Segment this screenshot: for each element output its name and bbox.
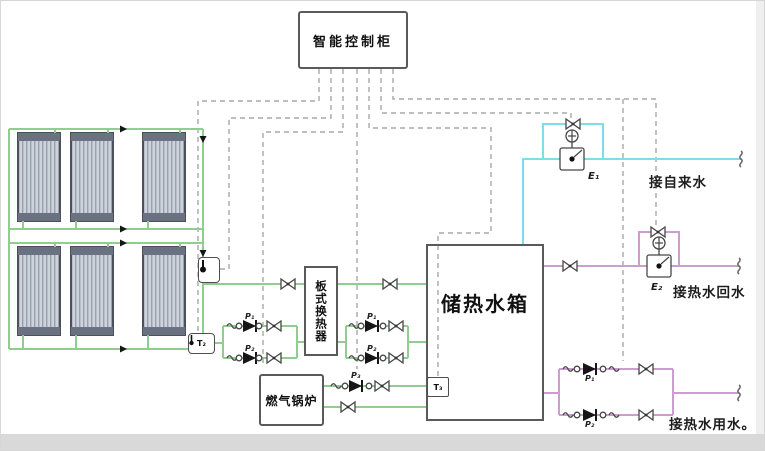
page-margin-right [756,1,764,434]
gate-valve-icon [281,279,295,289]
gate-valve-icon [267,353,281,363]
pump-label-boiler: P₃ [351,372,360,380]
solar-collector-panel [143,133,185,221]
pump-label-hx-2: P₂ [367,345,376,353]
union-icon [236,355,242,361]
storage-tank-label: 储热水箱 [441,288,529,317]
union-icon [366,383,372,389]
union-icon [600,366,606,372]
sensor-t1 [198,257,220,283]
union-icon [600,412,606,418]
gate-valve-icon [341,402,355,412]
motorized-valve-icon [560,130,584,170]
solar-collector-panel [71,133,113,221]
union-icon [342,383,348,389]
plate-heat-exchanger-box: 板式换热器 [304,266,338,356]
pipe-break-icon [738,258,740,274]
thermometer-icon [189,334,194,346]
pipe-break-icon [738,385,740,401]
gate-valve-icon [267,321,281,331]
gate-valve-icon [639,410,653,420]
gate-valve-icon [566,119,580,129]
union-icon [574,412,580,418]
sensor-t3: T₃ [427,377,449,397]
pump-label-solar-1: P₁ [245,313,254,321]
pump-icon [349,380,362,392]
union-icon [256,323,262,329]
valve-label-e2: E₂ [651,283,662,293]
solar-collector-array [18,133,185,335]
gate-valve-icon [389,353,403,363]
gate-valve-icon [375,381,389,391]
union-icon [256,355,262,361]
hot-water-pipes [544,232,739,415]
gas-boiler-label: 燃气锅炉 [265,392,317,409]
gate-valve-icon [651,227,665,237]
pump-icon [243,320,256,332]
pump-label-hx-1: P₁ [367,313,376,321]
gate-valve-icon [639,364,653,374]
sensor-t3-label: T₃ [434,383,443,392]
label-tap-water-inlet: 接自来水 [649,177,707,191]
union-icon [236,323,242,329]
pump-icon [365,352,378,364]
solar-hot-water-system-diagram: 智能控制柜 板式换热器 燃气锅炉 储热水箱 T₂ T₃ P₁ P₂ P₁ P₂ … [0,0,765,451]
union-icon [358,355,364,361]
pump-label-supply-2: P₂ [585,421,594,429]
pump-icon [243,352,256,364]
pump-icon [365,320,378,332]
sensor-t2-label: T₂ [197,339,206,348]
page-margin-bottom [1,434,764,451]
union-icon [358,323,364,329]
union-icon [380,355,386,361]
union-icon [380,323,386,329]
label-hot-water-supply: 接热水用水。 [669,419,756,433]
control-cabinet-box: 智能控制柜 [298,11,408,69]
gate-valve-icon [563,261,577,271]
label-hot-water-supply-suffix: 。 [742,417,757,433]
motorized-valve-icon [647,237,671,277]
solar-collector-panel [71,247,113,335]
valve-label-e1: E₁ [588,172,599,182]
solar-collector-panel [18,247,60,335]
gas-boiler-box: 燃气锅炉 [259,374,324,426]
control-cabinet-label: 智能控制柜 [313,31,393,50]
sensor-t2: T₂ [188,333,215,354]
pipe-break-icon [740,151,742,167]
thermometer-icon [199,258,207,274]
gate-valve-icon [383,279,397,289]
pump-label-solar-2: P₂ [245,345,254,353]
union-icon [574,366,580,372]
tap-water-pipes [523,124,741,244]
gate-valve-icon [389,321,403,331]
label-hot-water-supply-text: 接热水用水 [669,417,742,433]
solar-collector-panel [18,133,60,221]
label-hot-water-return: 接热水回水 [673,287,746,301]
pump-label-supply-1: P₁ [585,375,594,383]
solar-collector-panel [143,247,185,335]
plate-heat-exchanger-label: 板式换热器 [313,280,329,343]
